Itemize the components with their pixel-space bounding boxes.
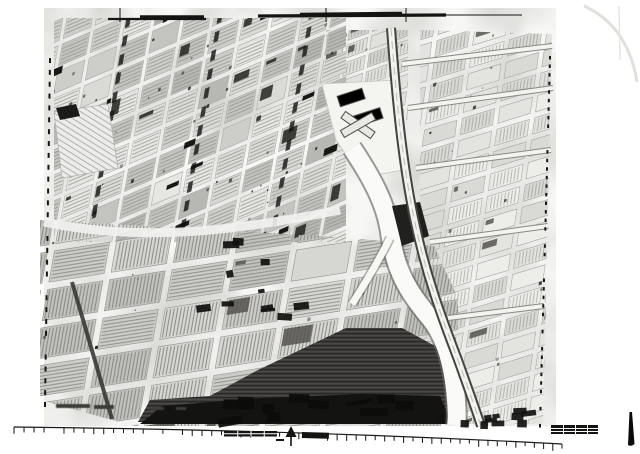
scanned-map xyxy=(0,0,640,454)
film-grain-page xyxy=(0,0,640,454)
screenshot-root xyxy=(0,0,640,454)
page: { "map": { "label": "black-and-white sca… xyxy=(0,0,640,454)
